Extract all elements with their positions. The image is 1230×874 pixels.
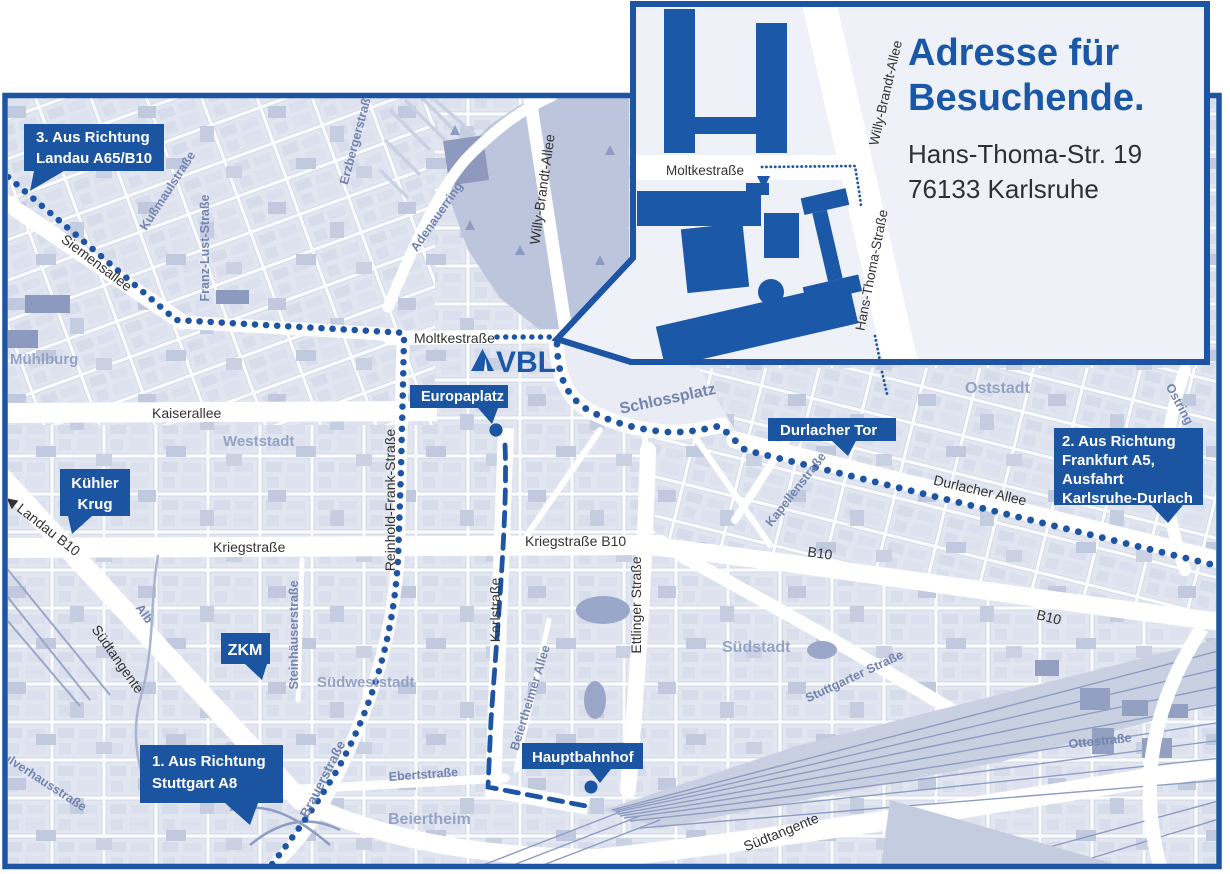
svg-text:Stuttgart A8: Stuttgart A8 bbox=[152, 775, 237, 792]
svg-text:Ausfahrt: Ausfahrt bbox=[1062, 471, 1124, 488]
svg-text:76133 Karlsruhe: 76133 Karlsruhe bbox=[908, 174, 1099, 204]
svg-text:3. Aus Richtung: 3. Aus Richtung bbox=[36, 129, 150, 146]
svg-text:Hans-Thoma-Str. 19: Hans-Thoma-Str. 19 bbox=[908, 139, 1142, 169]
svg-text:Kriegstraße B10: Kriegstraße B10 bbox=[525, 533, 626, 549]
svg-text:Hauptbahnhof: Hauptbahnhof bbox=[532, 749, 635, 766]
svg-text:Kaiserallee: Kaiserallee bbox=[152, 405, 221, 421]
svg-text:Frankfurt A5,: Frankfurt A5, bbox=[1062, 452, 1155, 469]
svg-text:Südstadt: Südstadt bbox=[722, 639, 791, 656]
svg-text:Krug: Krug bbox=[78, 496, 113, 513]
svg-text:Reinhold-Frank-Straße: Reinhold-Frank-Straße bbox=[382, 429, 398, 572]
svg-text:Karlstraße: Karlstraße bbox=[487, 578, 503, 643]
svg-text:Adresse für: Adresse für bbox=[908, 32, 1119, 74]
svg-text:Oststadt: Oststadt bbox=[965, 380, 1031, 397]
svg-text:Landau A65/B10: Landau A65/B10 bbox=[36, 150, 152, 167]
svg-text:Weststadt: Weststadt bbox=[223, 433, 294, 450]
svg-text:ZKM: ZKM bbox=[228, 642, 263, 659]
svg-text:Moltkestraße: Moltkestraße bbox=[414, 330, 495, 346]
svg-text:Kühler: Kühler bbox=[71, 475, 119, 492]
svg-text:Südweststadt: Südweststadt bbox=[317, 674, 415, 691]
svg-text:1. Aus Richtung: 1. Aus Richtung bbox=[152, 753, 266, 770]
svg-text:Mühlburg: Mühlburg bbox=[10, 351, 78, 368]
svg-text:Karlsruhe-Durlach: Karlsruhe-Durlach bbox=[1062, 490, 1193, 507]
svg-text:Kriegstraße: Kriegstraße bbox=[213, 539, 286, 555]
svg-text:2. Aus Richtung: 2. Aus Richtung bbox=[1062, 433, 1176, 450]
svg-text:Steinhäuserstraße: Steinhäuserstraße bbox=[287, 580, 301, 689]
svg-text:Europaplatz: Europaplatz bbox=[421, 389, 504, 405]
svg-text:Besuchende.: Besuchende. bbox=[908, 77, 1145, 119]
svg-text:VBL: VBL bbox=[496, 346, 556, 379]
svg-text:Franz-Lust-Straße: Franz-Lust-Straße bbox=[198, 194, 212, 301]
svg-text:Beiertheim: Beiertheim bbox=[388, 811, 471, 828]
svg-text:Durlacher Tor: Durlacher Tor bbox=[780, 422, 877, 439]
svg-text:Ettlinger Straße: Ettlinger Straße bbox=[628, 556, 644, 653]
svg-text:Moltkestraße: Moltkestraße bbox=[666, 163, 744, 178]
